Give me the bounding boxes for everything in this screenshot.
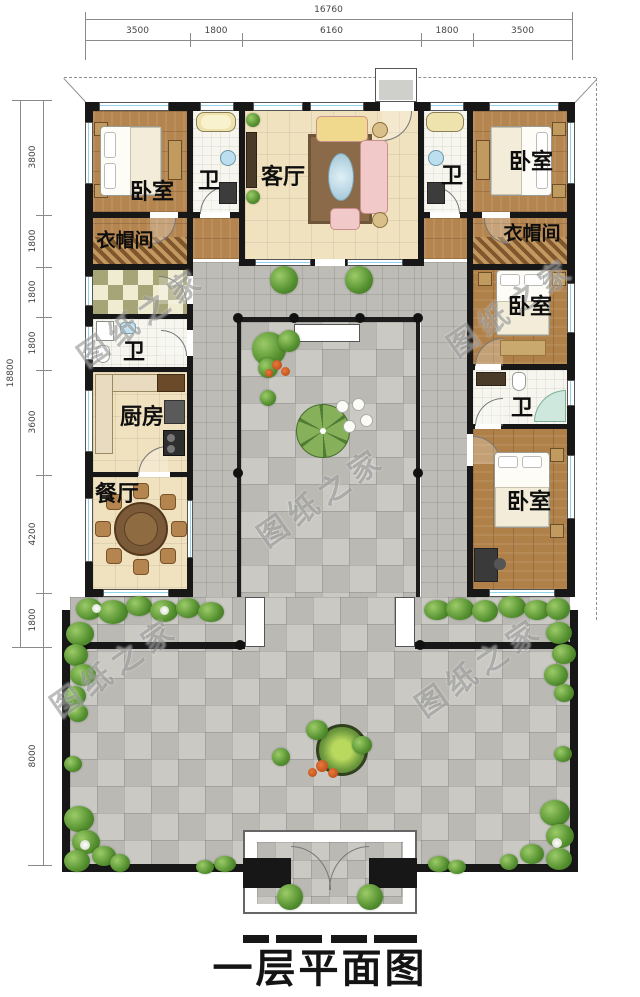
nightstand [550,448,564,462]
bathtub [426,112,464,132]
plant [64,806,94,832]
sink [220,150,236,166]
window [99,102,169,111]
gate-pillar [369,858,417,888]
side-table [372,122,388,138]
plant [272,748,290,766]
plant [196,860,214,874]
window [85,390,93,452]
patio-chair [336,400,349,413]
rug [500,340,546,356]
dresser [476,140,490,180]
column [235,640,245,650]
eave-outline [596,78,597,620]
courtyard-rail [237,317,241,597]
plant [278,330,300,352]
patio-chair [360,414,373,427]
toilet [512,372,526,391]
plant [446,598,474,620]
pillow [104,163,116,189]
dim-tick [28,865,52,866]
patio-chair [352,398,365,411]
window [567,380,575,406]
dim-top-seg: 1800 [190,26,242,36]
flower [281,367,290,376]
gate-pillar [243,858,291,888]
column [233,468,243,478]
label-bedroom-right-bottom: 卧室 [507,484,551,516]
plant [64,756,82,772]
dim-tick [36,475,52,476]
door-gap [315,259,345,266]
dining-chair [106,548,122,564]
dim-left-seg: 3800 [28,133,38,181]
bathtub-basin [201,115,231,129]
dim-tick [242,33,243,47]
plant [520,844,544,864]
plant [98,600,128,624]
plant [552,644,576,664]
sofa-top [316,116,368,142]
plant [198,602,224,622]
nightstand [478,272,492,286]
dim-tick [36,593,52,594]
stove-burner [167,434,175,442]
stove-burner [167,445,175,453]
label-bath-top-right: 卫 [441,158,463,190]
eave-corner [574,79,597,104]
sofa-right [360,140,388,214]
window [347,259,403,266]
plant [500,854,518,870]
plant [260,390,276,406]
dim-tick [12,647,52,648]
side-table [372,212,388,228]
dining-chair [133,559,149,575]
door-gap [380,102,414,111]
dim-tick [421,33,422,47]
label-bath-left-wing: 卫 [123,334,145,366]
courtyard-rail [237,317,420,322]
column-base [395,597,415,647]
dim-left-seg: 1800 [28,217,38,265]
plant [246,113,260,127]
pillow [104,132,116,158]
dim-tick [36,215,52,216]
column [355,313,365,323]
window [200,102,234,111]
window [567,122,575,184]
label-bedroom-top-right: 卧室 [509,144,553,176]
plant [448,860,466,874]
coffee-table [328,153,354,201]
white-flower [92,604,101,613]
nightstand [550,524,564,538]
plant [306,720,328,740]
pillow [522,456,542,468]
dining-chair [160,548,176,564]
floor-plan: 16760 3500 1800 6160 1800 3500 18800 380… [0,0,640,997]
courtyard-rail [416,317,420,597]
wall [418,102,424,266]
dim-tick [473,33,474,47]
label-bath-right-wing: 卫 [511,390,533,422]
label-kitchen: 厨房 [120,399,164,431]
tree [345,266,373,294]
dim-left-seg: 1800 [28,268,38,316]
dim-left-seg: 1800 [28,319,38,367]
window [187,500,193,558]
white-flower [552,838,562,848]
plant [110,854,130,872]
label-bath-top-left: 卫 [198,163,220,195]
dim-top-seg: 3500 [473,26,572,36]
pillow [498,456,518,468]
sofa-seat [330,208,360,230]
window [430,102,464,111]
window [85,122,93,184]
dim-tick [36,267,52,268]
dim-tick [36,370,52,371]
window [567,455,575,519]
label-living-room: 客厅 [261,159,305,191]
column-base [245,597,265,647]
flower [308,768,317,777]
kitchen-cabinet [157,374,185,392]
door-gap [187,330,193,356]
dim-left-seg: 1800 [28,596,38,644]
label-bedroom-top-left: 卧室 [130,174,174,206]
nightstand [552,184,566,198]
eave-corner [63,78,86,103]
window [489,102,559,111]
flower [328,768,338,778]
label-cloakroom-right: 衣帽间 [503,219,560,246]
wall [239,102,245,266]
dim-line [85,40,572,41]
page-title: 一层平面图 [0,936,640,994]
desk-chair [494,558,506,570]
dining-table-top [124,512,158,546]
window [85,276,93,306]
dim-top-seg: 1800 [421,26,473,36]
patio-chair [343,420,356,433]
stove [163,430,185,456]
dining-chair [160,494,176,510]
plant [352,736,372,754]
wall [93,367,193,372]
label-cloakroom-left: 衣帽间 [96,226,153,253]
column [415,640,425,650]
plant [554,746,572,762]
dim-tick [85,12,86,60]
dim-top-seg: 6160 [242,26,421,36]
dim-left-seg: 8000 [28,732,38,780]
column [413,313,423,323]
plant [472,600,498,622]
dim-left-total: 18800 [6,349,16,397]
label-dining-room: 餐厅 [95,476,139,508]
column [233,313,243,323]
column [289,313,299,323]
window [255,259,311,266]
veranda-walkway [190,262,242,597]
plant [64,850,90,872]
kitchen-appliances [164,400,185,424]
dim-line [20,100,21,647]
label-bedroom-right-middle: 卧室 [508,289,552,321]
dim-tick [190,33,191,47]
dim-tick [12,100,52,101]
dim-line [85,19,572,20]
courtyard-bench [294,324,360,342]
tv-cabinet [246,132,257,188]
vanity [476,372,506,386]
window [85,498,93,562]
dim-top-total: 16760 [85,5,572,15]
plant [554,684,574,702]
back-porch-shade [379,80,413,100]
column [413,468,423,478]
gate-bush [357,884,383,910]
window [253,102,303,111]
white-flower [80,840,90,850]
tree [270,266,298,294]
plant [544,664,568,686]
washer [219,182,237,204]
hall-top-right [424,218,467,259]
dim-top-seg: 3500 [85,26,190,36]
plant [246,190,260,204]
dining-chair [95,521,111,537]
umbrella-pole [320,428,326,434]
gate-bush [277,884,303,910]
dim-left-seg: 3600 [28,398,38,446]
flower [316,760,328,772]
plant [540,800,570,826]
nightstand [552,122,566,136]
dim-tick [572,12,573,60]
plant [214,856,236,872]
flower [265,369,273,377]
eave-outline [64,77,596,78]
dining-chair [171,521,187,537]
plant [428,856,450,872]
plant [546,848,572,870]
window [310,102,364,111]
plant [66,622,94,646]
kitchen-counter [95,374,113,454]
dim-tick [36,317,52,318]
dim-left-seg: 4200 [28,510,38,558]
